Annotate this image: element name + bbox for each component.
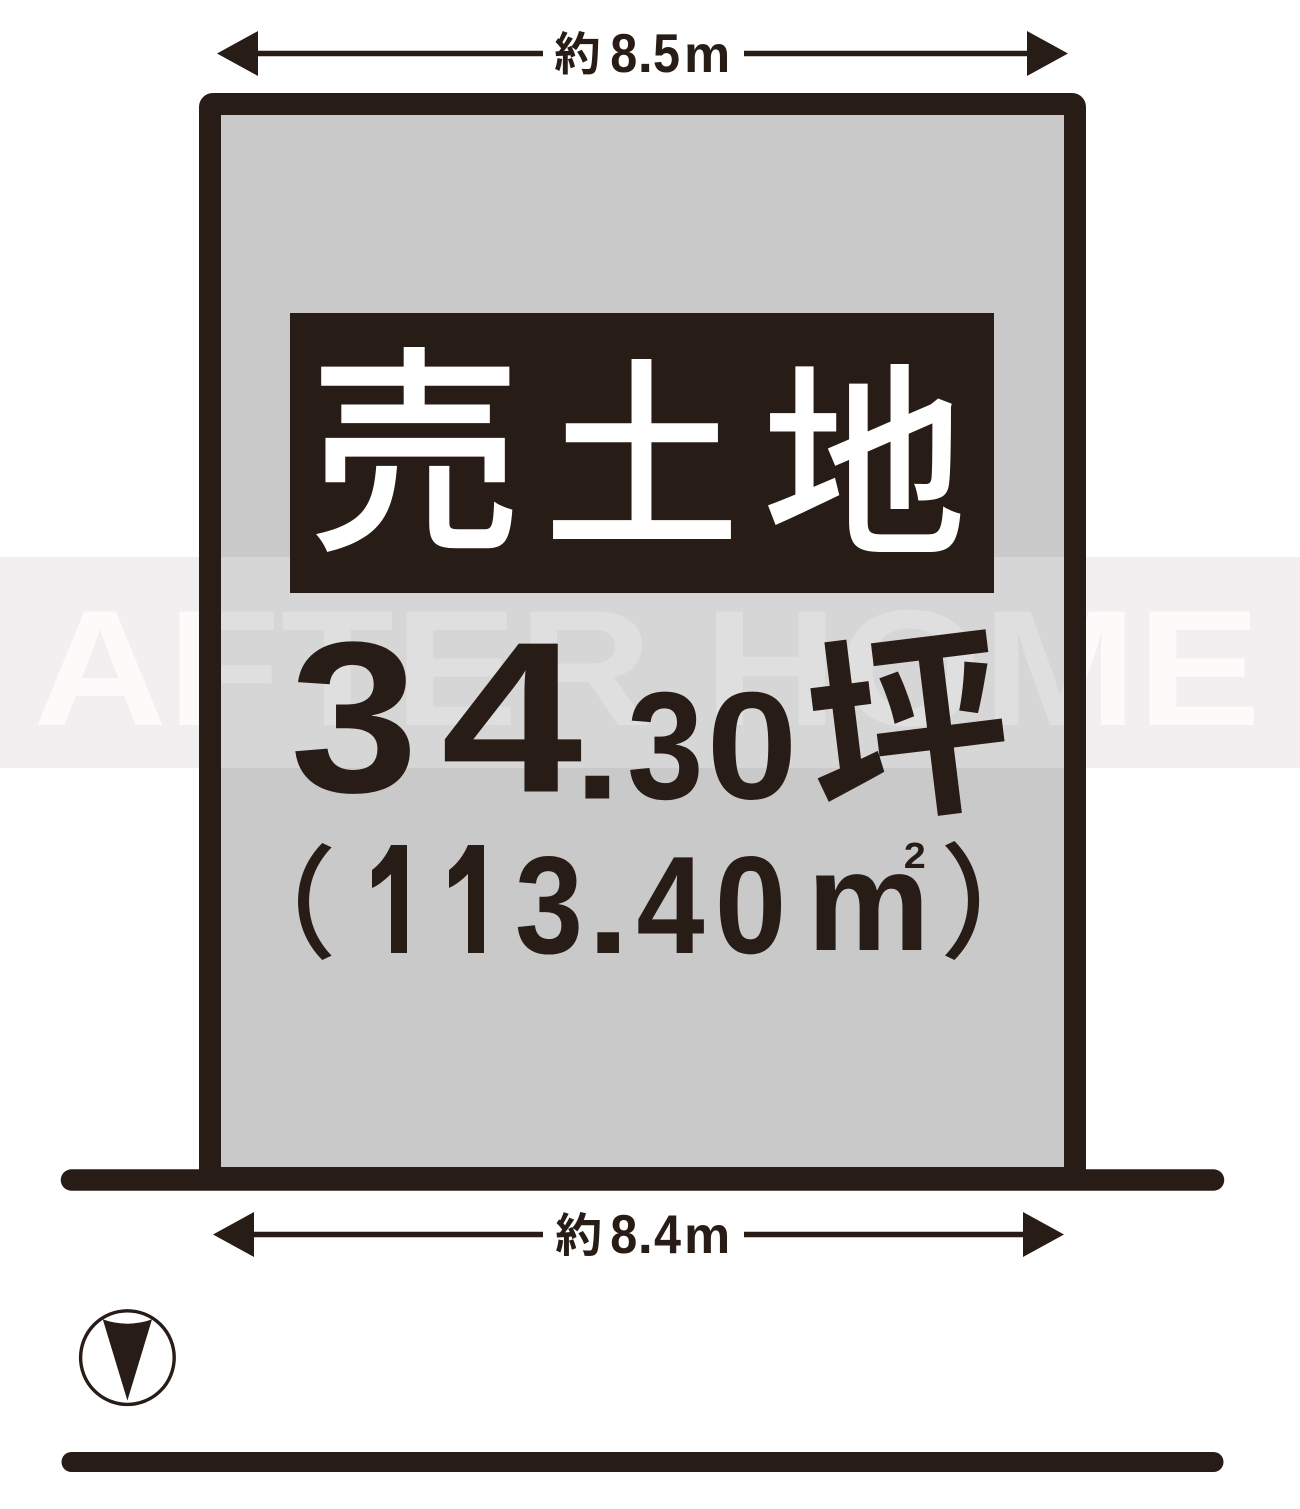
svg-text:2: 2	[904, 837, 926, 877]
svg-text:3: 3	[290, 598, 418, 838]
svg-text:0: 0	[707, 660, 798, 831]
svg-text:.: .	[638, 23, 653, 84]
svg-text:3: 3	[515, 827, 583, 983]
svg-text:8: 8	[610, 22, 637, 83]
svg-text:4: 4	[654, 1203, 681, 1264]
svg-text:m: m	[684, 26, 730, 84]
svg-text:4: 4	[637, 827, 705, 983]
svg-text:4: 4	[441, 597, 582, 837]
svg-text:m: m	[684, 1207, 730, 1265]
svg-text:0: 0	[715, 828, 787, 983]
svg-text:5: 5	[653, 22, 680, 83]
svg-text:.: .	[638, 1204, 653, 1265]
svg-text:.: .	[587, 827, 629, 982]
svg-text:3: 3	[627, 660, 704, 831]
svg-text:.: .	[574, 661, 621, 832]
svg-text:8: 8	[610, 1203, 637, 1264]
